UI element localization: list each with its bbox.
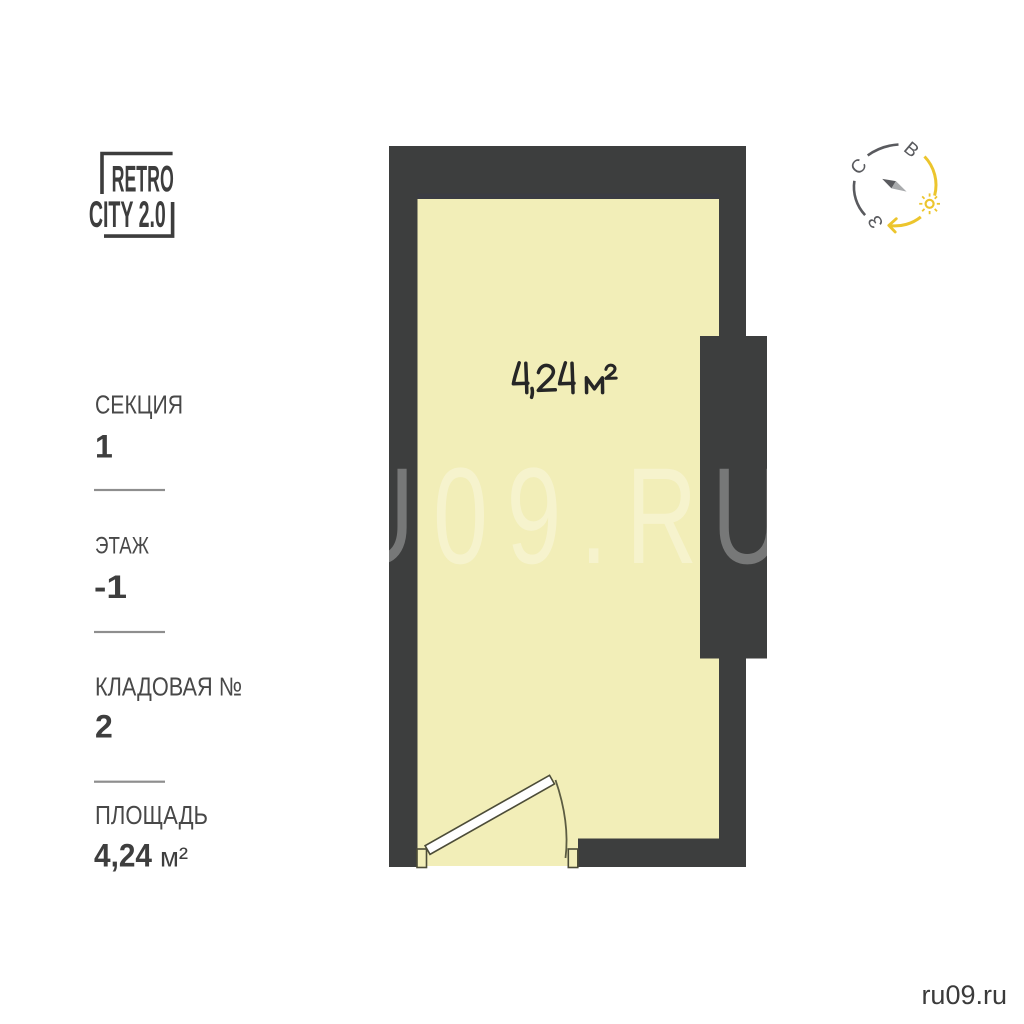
svg-text:2: 2 xyxy=(95,708,113,744)
svg-text:КЛАДОВАЯ №: КЛАДОВАЯ № xyxy=(95,671,242,701)
svg-text:9: 9 xyxy=(507,440,562,593)
svg-text:U: U xyxy=(712,440,783,593)
svg-text:ru09.ru: ru09.ru xyxy=(921,980,1007,1010)
svg-text:CITY 2.0: CITY 2.0 xyxy=(89,195,166,236)
svg-text:С: С xyxy=(847,155,872,179)
svg-text:СЕКЦИЯ: СЕКЦИЯ xyxy=(95,389,183,419)
svg-text:м²: м² xyxy=(160,841,188,872)
svg-text:-1: -1 xyxy=(94,569,127,605)
svg-text:ПЛОЩАДЬ: ПЛОЩАДЬ xyxy=(95,802,208,830)
svg-text:1: 1 xyxy=(95,428,113,464)
svg-text:.: . xyxy=(580,440,607,593)
svg-text:0: 0 xyxy=(433,440,488,593)
svg-text:З: З xyxy=(864,211,888,231)
svg-text:R: R xyxy=(626,440,697,593)
svg-text:U: U xyxy=(343,440,414,593)
svg-text:В: В xyxy=(899,138,922,162)
svg-text:ЭТАЖ: ЭТАЖ xyxy=(95,533,149,560)
svg-text:4,24: 4,24 xyxy=(94,837,152,873)
